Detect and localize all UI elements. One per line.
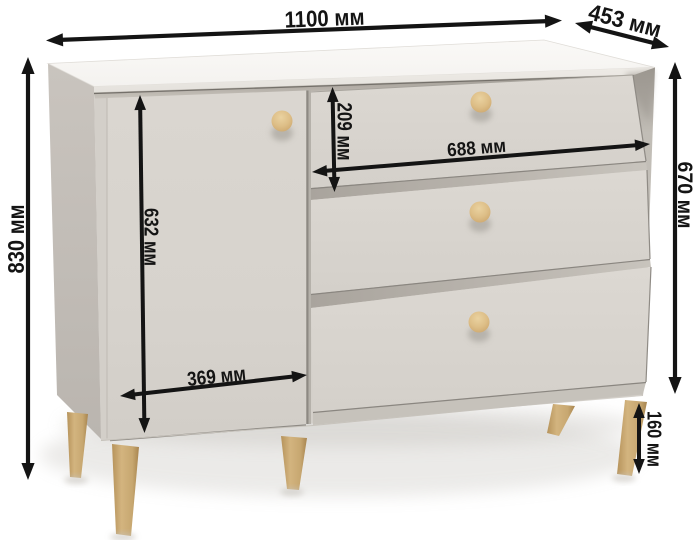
svg-text:830 мм: 830 мм	[3, 205, 29, 274]
svg-text:632 мм: 632 мм	[139, 208, 162, 266]
svg-text:670 мм: 670 мм	[673, 162, 697, 229]
svg-text:1100 мм: 1100 мм	[284, 4, 365, 33]
svg-text:160 мм: 160 мм	[643, 411, 665, 467]
svg-text:209 мм: 209 мм	[333, 103, 356, 161]
